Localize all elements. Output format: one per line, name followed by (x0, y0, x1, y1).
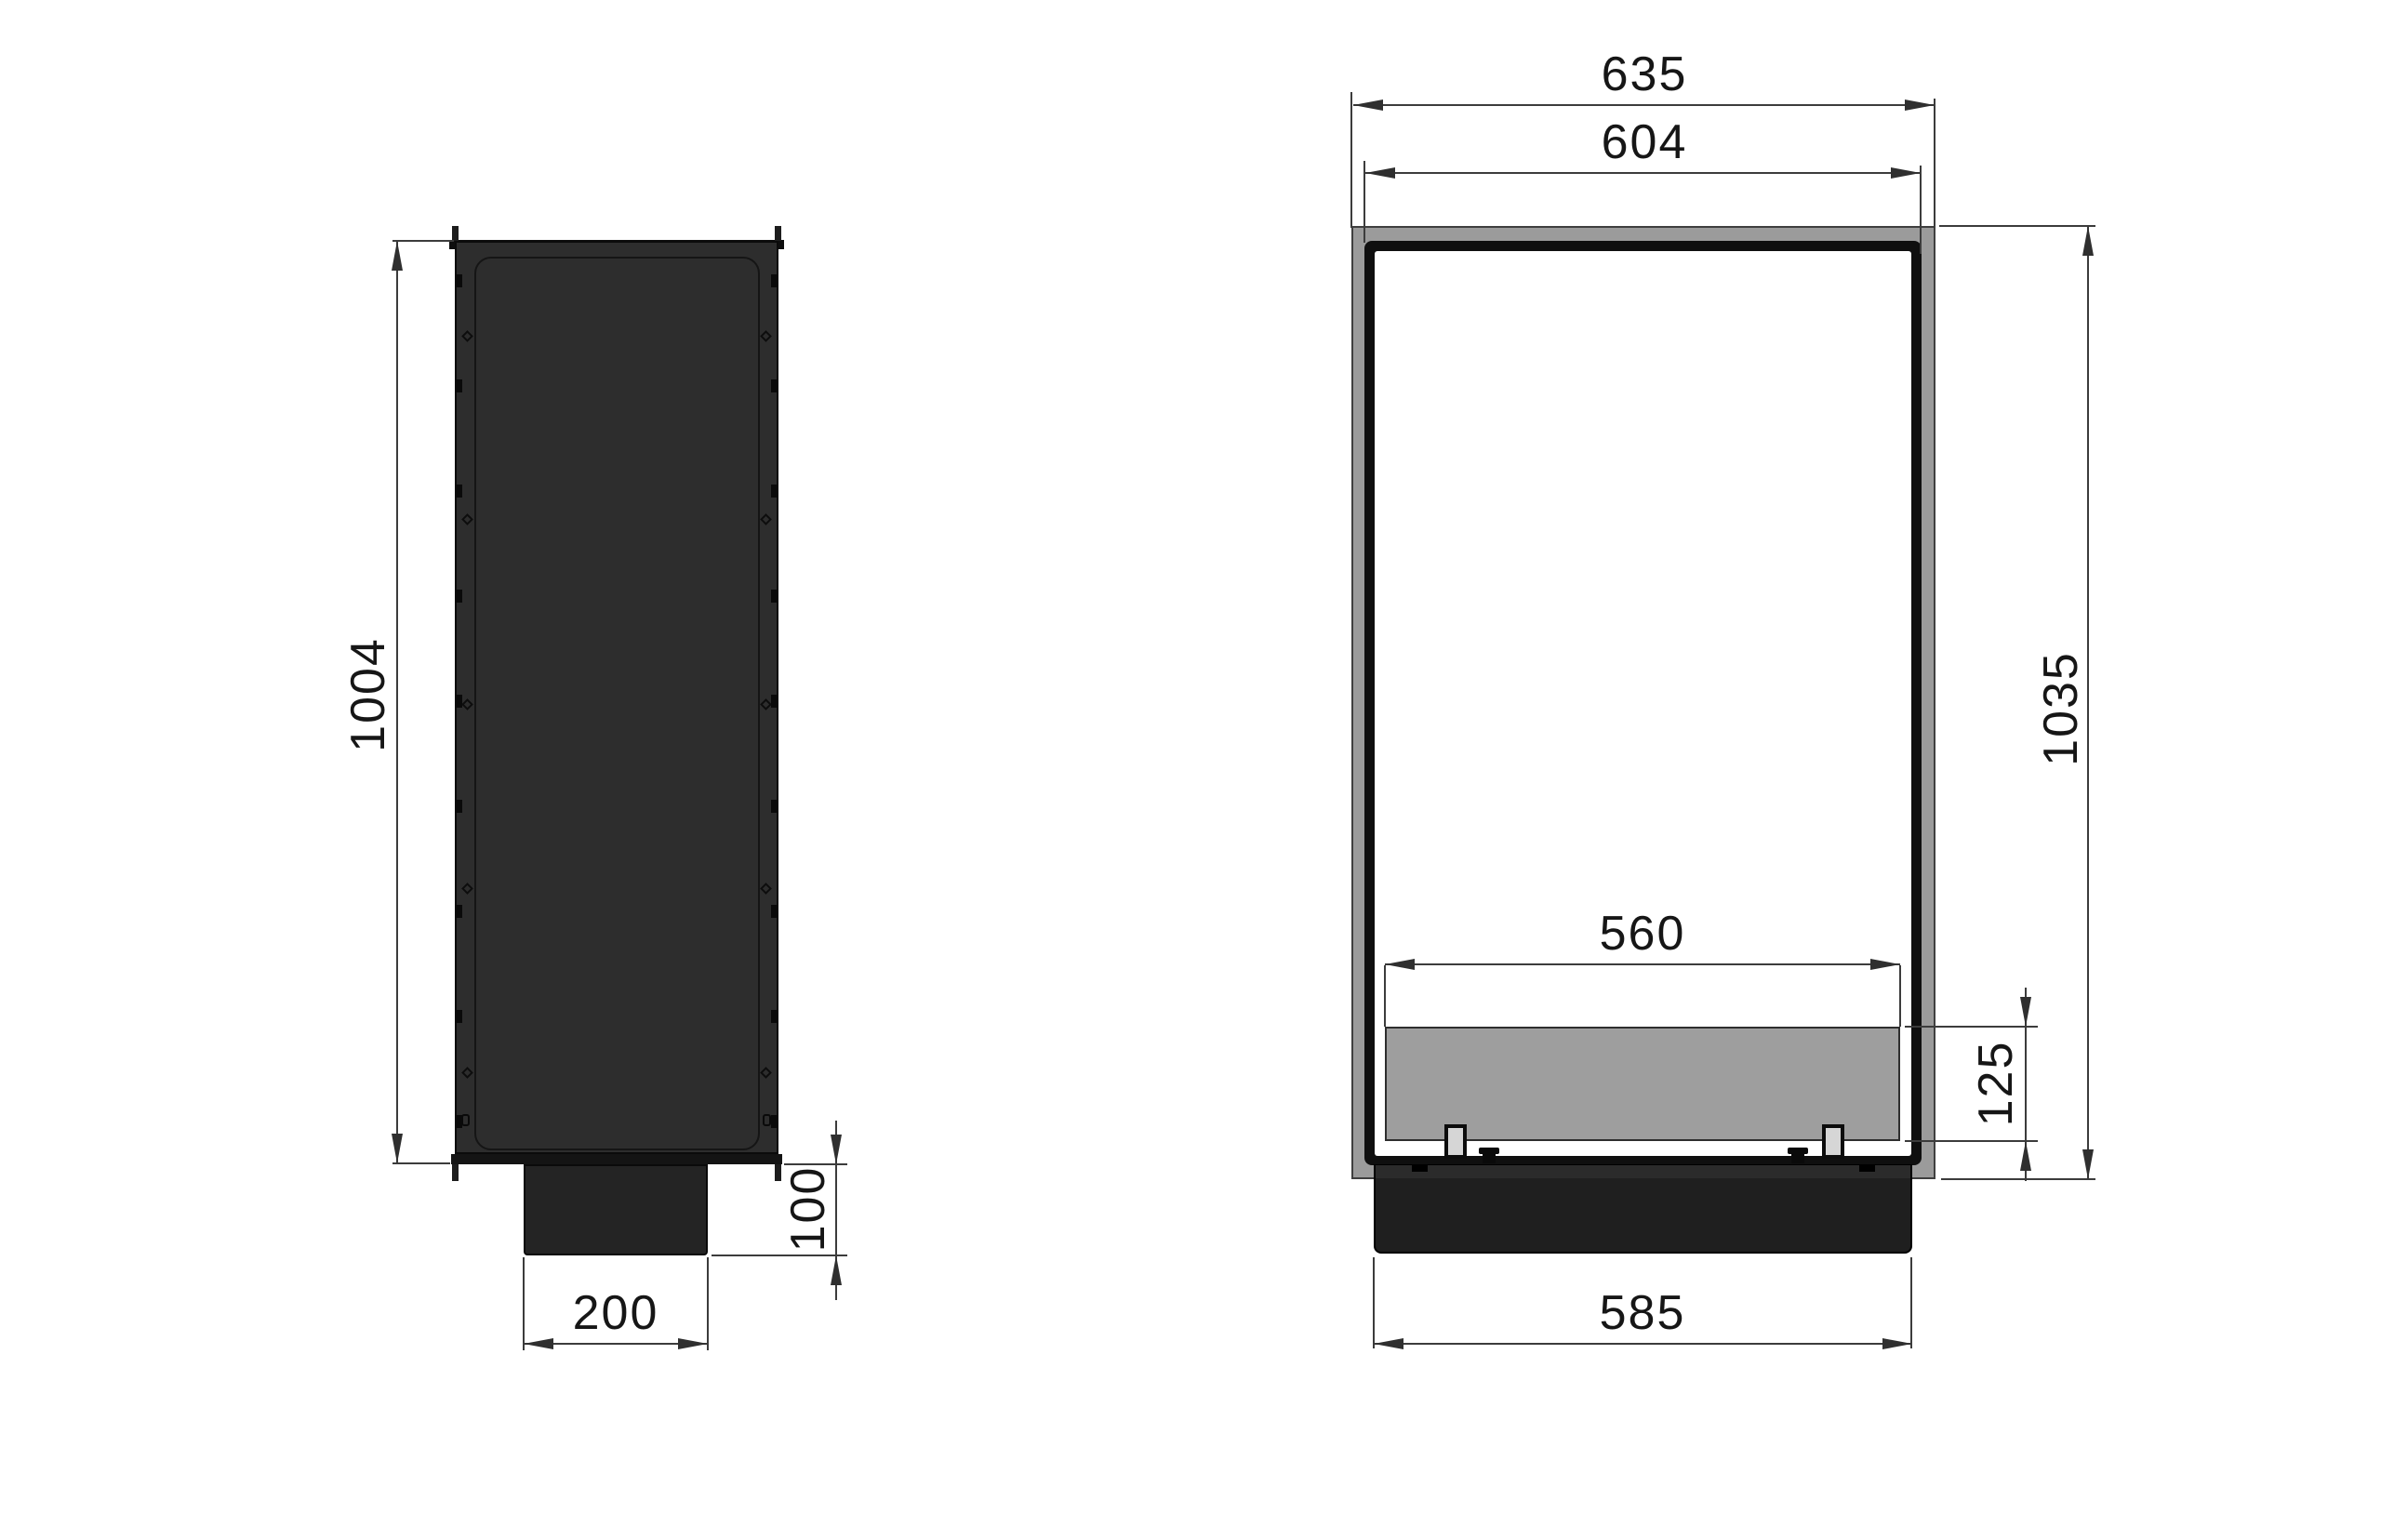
edge-slot (771, 800, 778, 813)
arrowhead-left (1385, 959, 1415, 970)
edge-slot (771, 379, 778, 392)
dim-label-base-width: 585 (1550, 1285, 1736, 1341)
edge-slot (455, 379, 462, 392)
dim-label-overall-width: 635 (1551, 46, 1737, 102)
extension-line (1934, 99, 1935, 228)
extension-line (1384, 965, 1386, 1027)
edge-slot (455, 274, 462, 287)
extension-line (1899, 965, 1901, 1027)
corner-hole (763, 1114, 771, 1126)
extension-line (1939, 225, 2095, 227)
dimension-line (1365, 172, 1921, 174)
corner-hole (461, 1114, 470, 1126)
extension-line (1910, 1257, 1912, 1348)
arrowhead-down (392, 1134, 403, 1163)
side-bottom-left-tab (452, 1164, 459, 1181)
dimension-line (1385, 963, 1900, 965)
side-top-right-tab (775, 226, 781, 241)
plinth-foot (1412, 1165, 1428, 1172)
arrowhead-down (2082, 1149, 2094, 1179)
dim-label-overall-height: 1035 (2033, 616, 2089, 802)
dim-label-burner-width: 560 (1550, 906, 1736, 962)
edge-slot (455, 1115, 462, 1128)
arrowhead-left (1374, 1338, 1403, 1349)
arrowhead-right (1870, 959, 1900, 970)
dim-label-duct-width: 200 (523, 1285, 709, 1341)
edge-slot (771, 695, 778, 708)
bolt-icon (1483, 1154, 1496, 1163)
side-inner-panel-outline (474, 257, 760, 1150)
dim-label-opening-width: 604 (1551, 114, 1737, 170)
extension-line (1350, 92, 1352, 228)
edge-slot (771, 1115, 778, 1128)
arrowhead-left (1353, 100, 1383, 111)
edge-slot (771, 274, 778, 287)
dim-label-side-height: 1004 (340, 602, 396, 788)
bolt-icon (1788, 1148, 1808, 1154)
base-plinth-lip (1376, 1165, 1910, 1178)
burner-clip-right (1822, 1124, 1844, 1159)
arrowhead-right (1905, 100, 1935, 111)
burner-clip-left (1444, 1124, 1467, 1159)
arrowhead-right (1882, 1338, 1912, 1349)
edge-slot (455, 695, 462, 708)
edge-slot (771, 905, 778, 918)
side-top-left-tab (452, 226, 459, 241)
edge-slot (455, 590, 462, 603)
dim-label-burner-height: 125 (1968, 990, 2024, 1176)
bolt-icon (1479, 1148, 1499, 1154)
edge-slot (455, 1010, 462, 1023)
edge-slot (455, 905, 462, 918)
edge-slot (771, 590, 778, 603)
dimension-line (1353, 104, 1935, 106)
plinth-foot (1859, 1165, 1875, 1172)
dimension-line (1374, 1343, 1912, 1345)
arrowhead-up (392, 241, 403, 271)
arrowhead-right (1891, 167, 1921, 179)
bolt-icon (1791, 1154, 1804, 1163)
edge-slot (771, 1010, 778, 1023)
extension-line (1941, 1178, 2095, 1180)
edge-slot (455, 485, 462, 498)
side-bottom-flange (451, 1154, 782, 1164)
arrowhead-up (2082, 226, 2094, 256)
front-opening (1375, 251, 1911, 1156)
side-duct-box (524, 1164, 708, 1255)
arrowhead-left (1365, 167, 1395, 179)
edge-slot (455, 800, 462, 813)
extension-line (1920, 166, 1922, 254)
dimension-line (396, 241, 398, 1163)
edge-slot (771, 485, 778, 498)
technical-drawing-canvas: 1004 200 100 (0, 0, 2381, 1540)
dim-label-duct-height: 100 (780, 1116, 836, 1302)
extension-line (1373, 1257, 1375, 1348)
